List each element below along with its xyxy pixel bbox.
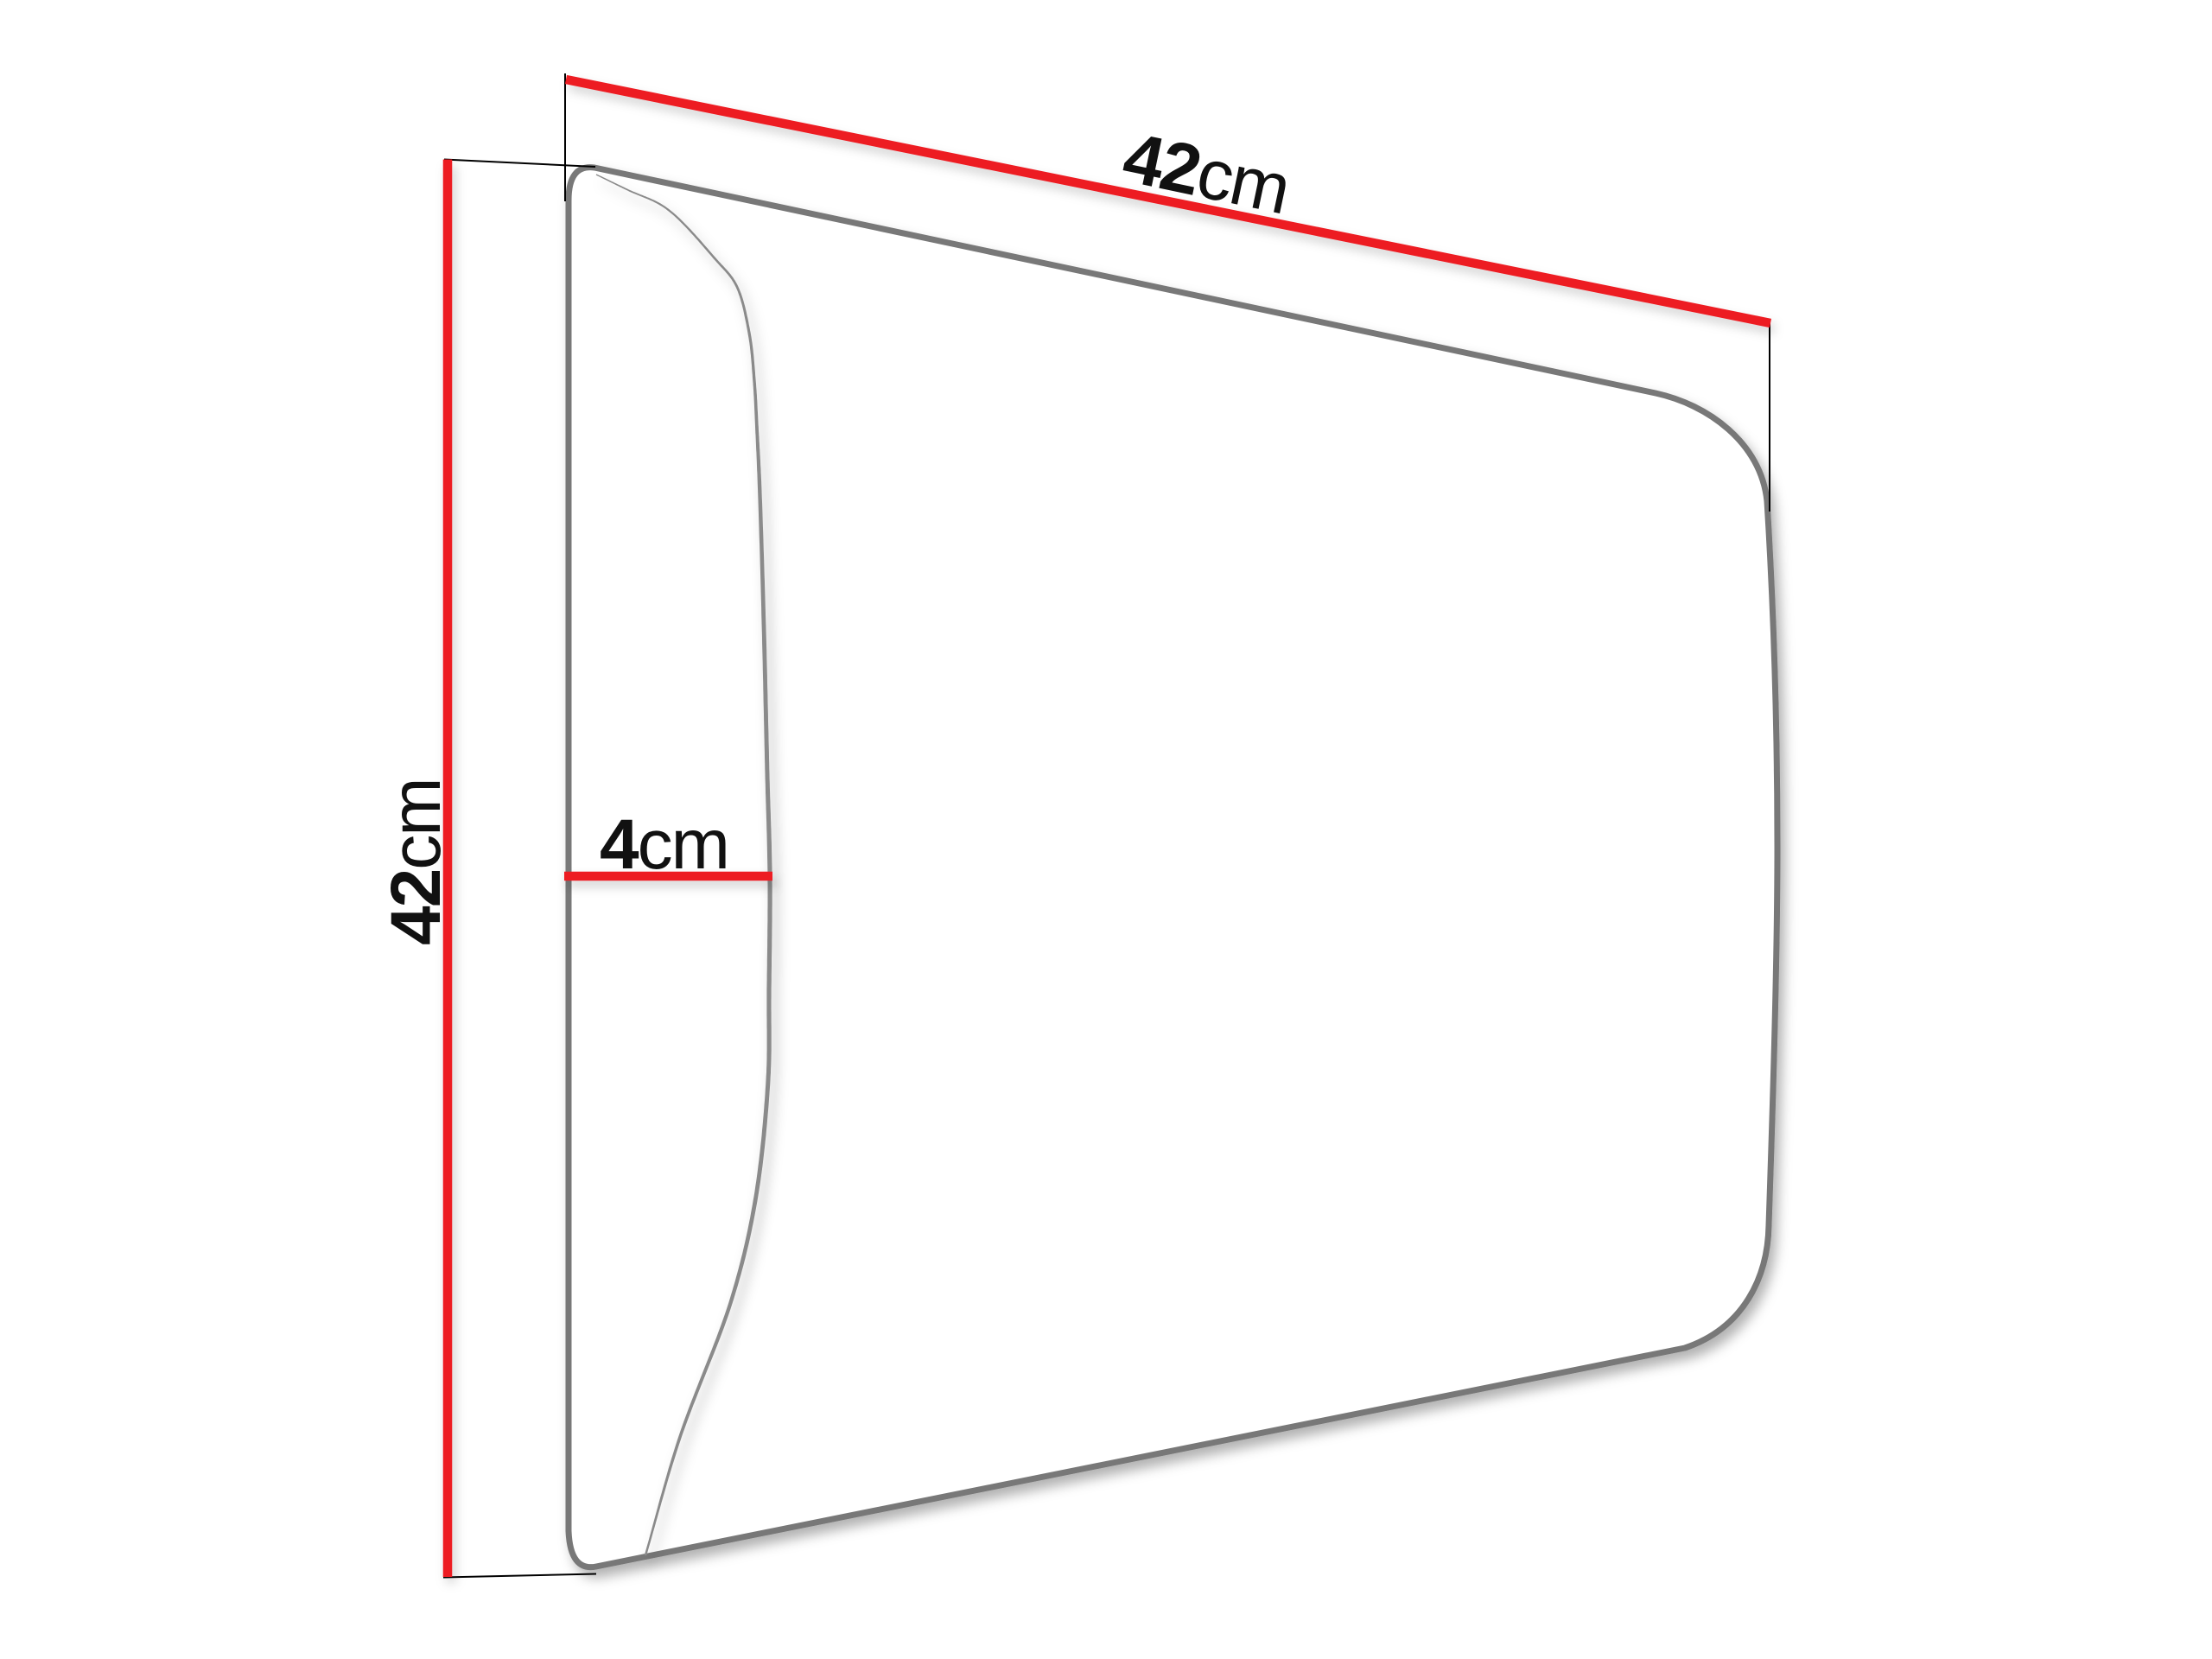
svg-text:4cm: 4cm — [600, 805, 728, 884]
svg-text:42cm: 42cm — [377, 779, 455, 945]
